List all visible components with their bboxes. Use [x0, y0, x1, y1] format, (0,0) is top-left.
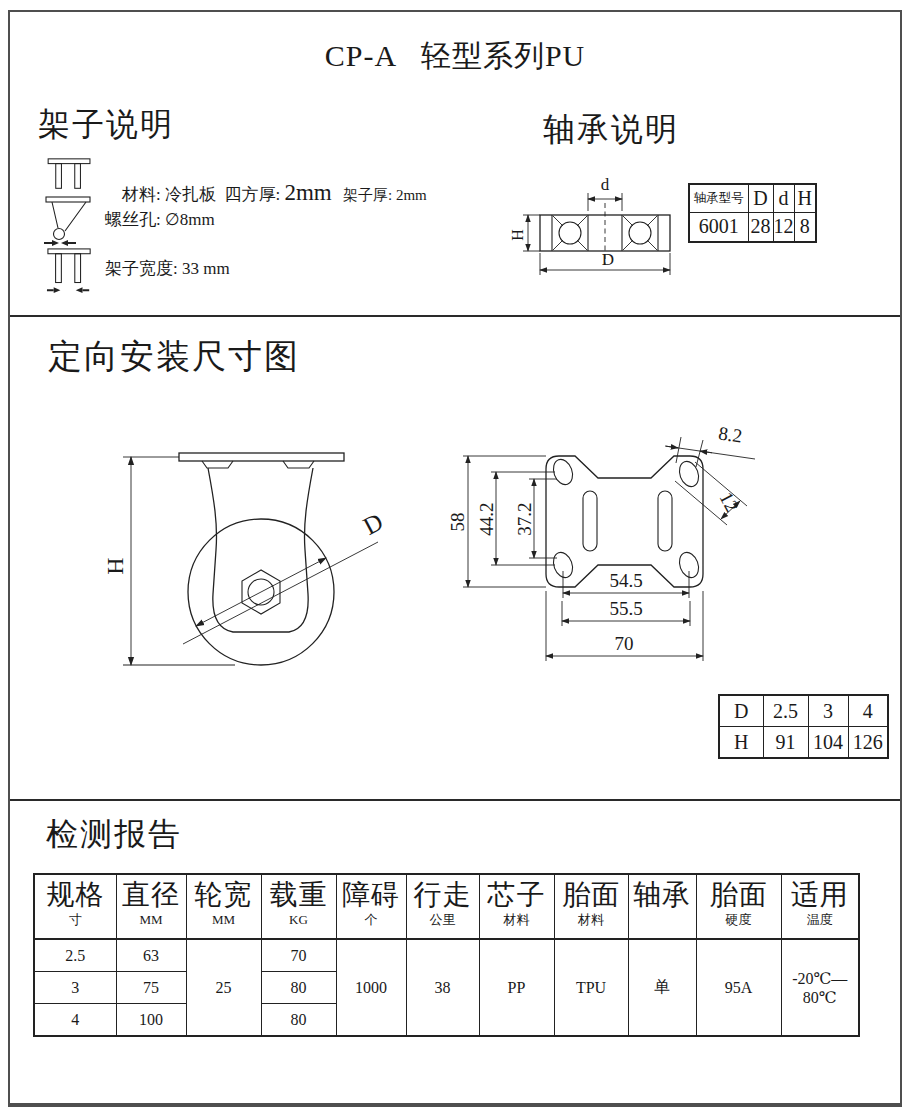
- obstacle-value: 1000: [336, 939, 406, 1036]
- plate-dim-12: 12: [715, 489, 742, 516]
- col-bearing-title: 轴承: [629, 878, 696, 912]
- dh-H-val-3: 126: [848, 727, 888, 759]
- col-temperature-sub: 温度: [782, 912, 859, 928]
- temperature-value: -20℃—80℃: [781, 939, 859, 1036]
- frame-plate-thickness-label: 架子厚:: [332, 187, 396, 203]
- col-spec: 规格寸: [34, 874, 116, 939]
- mounting-section-heading: 定向安装尺寸图: [48, 334, 300, 380]
- report-table: 规格寸 直径MM 轮宽MM 载重KG 障碍个 行走公里 芯子材料 胎面材料 轴承…: [33, 873, 860, 1037]
- load-80a: 80: [261, 972, 336, 1004]
- dh-H-val-1: 91: [763, 727, 808, 759]
- page-title: CP-A 轻型系列PU: [0, 36, 910, 77]
- spec-3: 3: [34, 972, 116, 1004]
- col-diameter-sub: MM: [117, 912, 186, 928]
- bearing-th-H: H: [794, 184, 816, 212]
- dh-row-H-label: H: [719, 727, 763, 759]
- frame-screwhole-icon: [42, 195, 96, 249]
- hardness-value: 95A: [696, 939, 781, 1036]
- col-tread: 胎面材料: [554, 874, 628, 939]
- bearing-dim-h-label: H: [509, 229, 526, 241]
- report-header-row: 规格寸 直径MM 轮宽MM 载重KG 障碍个 行走公里 芯子材料 胎面材料 轴承…: [34, 874, 859, 939]
- bearing-D-value: 28: [748, 212, 773, 242]
- bearing-th-D: D: [748, 184, 773, 212]
- plate-dim-58: 58: [447, 513, 468, 532]
- col-obstacle-title: 障碍: [337, 878, 406, 912]
- plate-dim-55-5: 55.5: [609, 598, 642, 619]
- distance-value: 38: [406, 939, 479, 1036]
- plate-dim-70: 70: [615, 633, 634, 654]
- col-wheel-width-title: 轮宽: [187, 878, 261, 912]
- col-spec-sub: 寸: [35, 912, 116, 928]
- bearing-H-value: 8: [794, 212, 816, 242]
- plate-dim-44-2: 44.2: [476, 502, 497, 535]
- frame-thickness-value: 2mm: [284, 180, 331, 205]
- diameter-63: 63: [116, 939, 186, 972]
- col-distance: 行走公里: [406, 874, 479, 939]
- plate-dim-37-2: 37.2: [514, 502, 535, 535]
- col-spec-title: 规格: [35, 878, 116, 912]
- bearing-d-value: 12: [773, 212, 794, 242]
- bearing-table: 轴承型号 D d H 6001 28 12 8: [688, 183, 817, 243]
- col-load-title: 载重: [262, 878, 336, 912]
- load-80b: 80: [261, 1004, 336, 1037]
- dh-H-val-2: 104: [808, 727, 848, 759]
- bearing-th-model: 轴承型号: [689, 184, 748, 212]
- col-hardness-title: 胎面: [697, 878, 781, 912]
- col-distance-sub: 公里: [407, 912, 479, 928]
- col-core-sub: 材料: [480, 912, 554, 928]
- core-material-value: PP: [479, 939, 554, 1036]
- col-load-sub: KG: [262, 912, 336, 928]
- wheel-width-value: 25: [186, 939, 261, 1036]
- spec-sheet-page: CP-A 轻型系列PU 架子说明 材料: 冷扎板 四方厚: 2mm 架子厚: 2…: [0, 0, 910, 1113]
- col-diameter-title: 直径: [117, 878, 186, 912]
- bearing-dim-D-label: D: [602, 250, 614, 269]
- bearing-th-d: d: [773, 184, 794, 212]
- dh-D-val-3: 4: [848, 695, 888, 727]
- col-obstacle: 障碍个: [336, 874, 406, 939]
- spec-4: 4: [34, 1004, 116, 1037]
- section-divider-2: [10, 799, 900, 801]
- tread-material-value: TPU: [554, 939, 628, 1036]
- col-tread-sub: 材料: [555, 912, 628, 928]
- bearing-dim-d-label: d: [601, 175, 610, 194]
- col-bearing-sub: [629, 912, 696, 928]
- section-divider-1: [10, 315, 900, 317]
- col-wheel-width: 轮宽MM: [186, 874, 261, 939]
- plate-top-view: 58 44.2 37.2 54.5 55.5 70 8.2 12: [445, 415, 775, 715]
- dh-row-D-label: D: [719, 695, 763, 727]
- col-temperature-title: 适用: [782, 878, 859, 912]
- frame-material-label: 材料: 冷扎板 四方厚:: [122, 185, 284, 204]
- load-70: 70: [261, 939, 336, 972]
- col-obstacle-sub: 个: [337, 912, 406, 928]
- diameter-75: 75: [116, 972, 186, 1004]
- bearing-section-heading: 轴承说明: [543, 108, 679, 152]
- frame-plate-thickness-value: 2mm: [396, 187, 427, 203]
- col-hardness-sub: 硬度: [697, 912, 781, 928]
- plate-dim-8-2: 8.2: [717, 422, 743, 446]
- col-core-title: 芯子: [480, 878, 554, 912]
- frame-bracket-icon: [46, 156, 94, 194]
- frame-width-icon: [46, 245, 94, 297]
- col-hardness: 胎面硬度: [696, 874, 781, 939]
- bearing-diagram: d H D: [515, 163, 690, 288]
- frame-section-heading: 架子说明: [38, 103, 174, 147]
- diameter-100: 100: [116, 1004, 186, 1037]
- dh-D-val-1: 2.5: [763, 695, 808, 727]
- side-dim-D-label: D: [359, 508, 388, 540]
- col-load: 载重KG: [261, 874, 336, 939]
- col-core: 芯子材料: [479, 874, 554, 939]
- col-bearing: 轴承: [628, 874, 696, 939]
- dh-table: D 2.5 3 4 H 91 104 126: [718, 694, 889, 759]
- col-distance-title: 行走: [407, 878, 479, 912]
- plate-dim-54-5: 54.5: [609, 570, 642, 591]
- spec-2-5: 2.5: [34, 939, 116, 972]
- bearing-type-value: 单: [628, 939, 696, 1036]
- frame-width-text: 架子宽度: 33 mm: [105, 257, 230, 280]
- col-diameter: 直径MM: [116, 874, 186, 939]
- report-row-1: 2.5 63 25 70 1000 38 PP TPU 单 95A -20℃—8…: [34, 939, 859, 972]
- dh-D-val-2: 3: [808, 695, 848, 727]
- col-tread-title: 胎面: [555, 878, 628, 912]
- frame-screwhole-text: 螺丝孔: ∅8mm: [105, 208, 215, 231]
- report-section-heading: 检测报告: [46, 813, 182, 857]
- col-temperature: 适用温度: [781, 874, 859, 939]
- caster-side-view: H D: [95, 432, 415, 687]
- col-wheel-width-sub: MM: [187, 912, 261, 928]
- bearing-model-value: 6001: [689, 212, 748, 242]
- side-dim-H-label: H: [102, 557, 128, 574]
